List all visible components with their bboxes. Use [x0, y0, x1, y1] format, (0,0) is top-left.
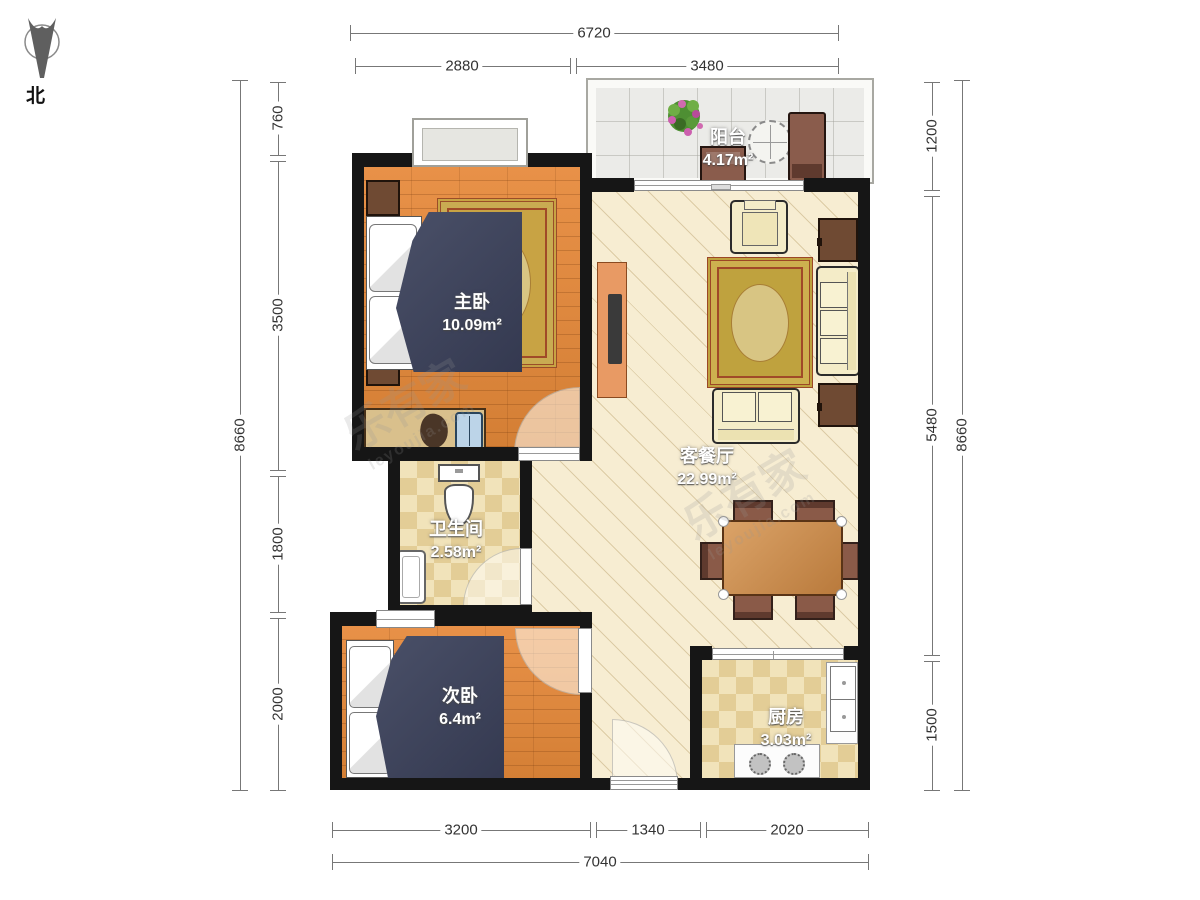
balcony-chair	[788, 112, 826, 182]
wall	[678, 778, 690, 790]
dim-left-seg1: 760	[270, 101, 287, 134]
dim-right-seg2: 5480	[924, 404, 941, 445]
second-window	[376, 610, 435, 628]
compass: 北	[10, 6, 72, 108]
wall	[520, 455, 532, 548]
dim-bottom-seg3: 2020	[766, 822, 807, 839]
second-door-leaf	[578, 628, 592, 693]
kitchen-sliding-door	[712, 648, 844, 660]
wall	[690, 778, 870, 790]
wall	[592, 778, 610, 790]
armchair	[730, 200, 788, 254]
dim-left-total: 8660	[232, 414, 249, 455]
north-arrow-icon	[10, 6, 72, 82]
label-second: 次卧 6.4m²	[439, 684, 481, 732]
wall	[330, 778, 592, 790]
tv	[608, 294, 622, 364]
living-rug	[707, 257, 813, 388]
side-table	[818, 383, 858, 427]
wall	[352, 447, 518, 461]
wall	[388, 447, 400, 617]
sofa-three-seat	[816, 266, 860, 376]
wall	[580, 693, 592, 790]
north-label: 北	[26, 81, 72, 108]
nightstand	[366, 180, 400, 216]
wall	[858, 178, 870, 790]
fridge	[830, 666, 856, 732]
label-bath: 卫生间 2.58m²	[429, 517, 483, 565]
wall	[588, 178, 634, 192]
dining-chair	[795, 594, 835, 620]
dim-right-seg3: 1500	[924, 704, 941, 745]
round-table	[748, 120, 792, 164]
dim-right-seg1: 1200	[924, 115, 941, 156]
dim-left-seg3: 1800	[270, 523, 287, 564]
label-balcony: 阳台 4.17m²	[703, 125, 754, 173]
chair-blue	[455, 412, 483, 450]
dim-top-seg2: 3480	[686, 58, 727, 75]
dim-top-seg1: 2880	[441, 58, 482, 75]
wall	[690, 646, 702, 790]
toilet-tank	[438, 464, 480, 482]
dim-right-total: 8660	[954, 414, 971, 455]
dim-bottom-total: 7040	[579, 854, 620, 871]
plant-icon	[660, 92, 708, 142]
dim-left-seg4: 2000	[270, 683, 287, 724]
wall	[433, 612, 580, 626]
dining-table	[722, 520, 843, 596]
dining-chair	[733, 594, 773, 620]
dim-bottom-seg2: 1340	[627, 822, 668, 839]
loveseat	[712, 388, 800, 444]
bath-sink	[396, 550, 426, 604]
label-living: 客餐厅 22.99m²	[677, 444, 737, 492]
entrance-door-leaf	[610, 776, 678, 790]
dim-left-seg2: 3500	[270, 294, 287, 335]
bath-door-leaf	[520, 548, 532, 605]
wall	[844, 646, 870, 660]
master-door-leaf	[518, 447, 580, 461]
dim-top-total: 6720	[573, 25, 614, 42]
label-master: 主卧 10.09m²	[442, 290, 502, 338]
balcony-sliding-door	[634, 180, 804, 191]
wall	[580, 612, 592, 628]
floorplan-canvas: 北 6720 2880 3480 3200 1340 2020 7040	[0, 0, 1200, 900]
label-kitchen: 厨房 3.03m²	[761, 705, 812, 753]
wall	[330, 612, 342, 790]
dim-bottom-seg1: 3200	[440, 822, 481, 839]
wall	[580, 153, 592, 461]
bay-window	[412, 118, 528, 167]
wall	[352, 153, 364, 461]
side-table	[818, 218, 858, 262]
